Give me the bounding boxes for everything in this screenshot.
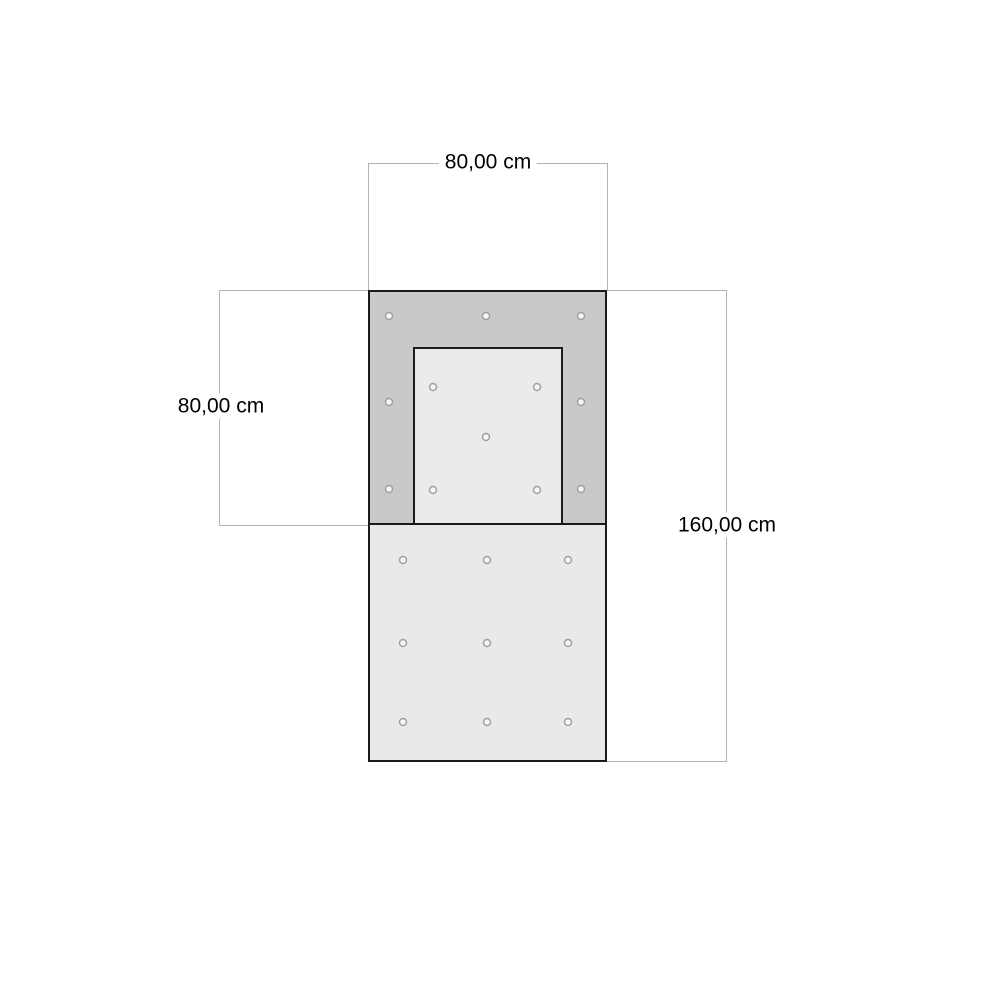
left-dimension-extension-top	[219, 290, 368, 291]
top-dimension-extension-right	[607, 163, 608, 290]
right-dimension-extension-top	[607, 290, 726, 291]
top-width-label: 80,00 cm	[439, 149, 537, 174]
right-dimension-extension-bottom	[607, 761, 726, 762]
left-dimension-extension-bottom	[219, 525, 368, 526]
diagram: 80,00 cm 80,00 cm 160,00 cm	[0, 0, 1000, 1000]
left-height-label: 80,00 cm	[172, 393, 270, 418]
right-height-label: 160,00 cm	[672, 512, 782, 537]
top-dimension-extension-left	[368, 163, 369, 290]
inner-panel	[413, 347, 563, 525]
bottom-panel	[368, 523, 607, 762]
